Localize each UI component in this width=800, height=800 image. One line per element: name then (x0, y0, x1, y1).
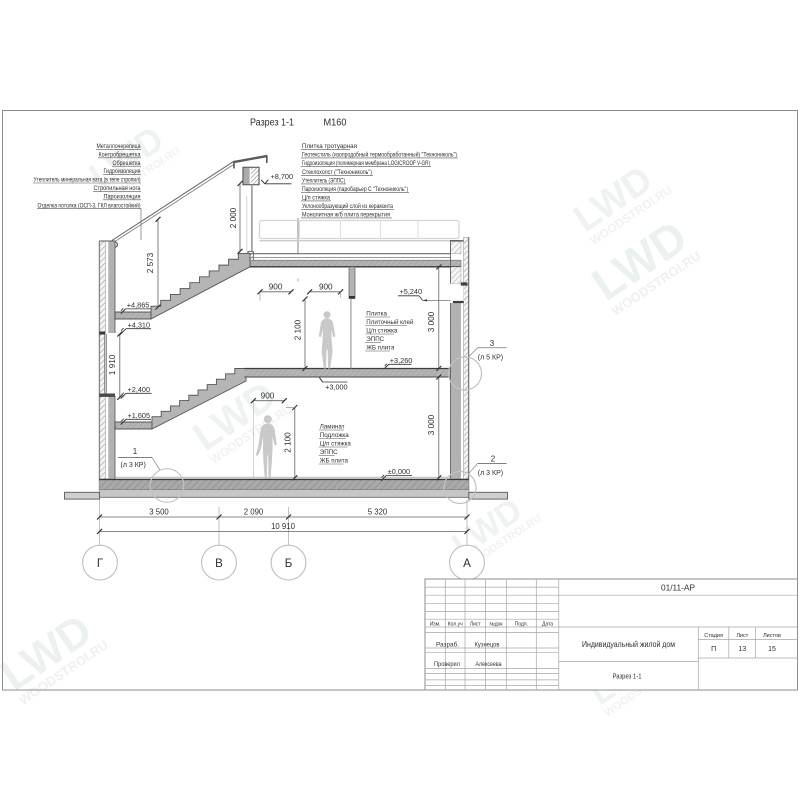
svg-text:Подп.: Подп. (515, 621, 528, 627)
svg-text:3 500: 3 500 (149, 508, 169, 517)
svg-text:ЭППС: ЭППС (320, 449, 338, 456)
svg-text:Ц/п стяжка: Ц/п стяжка (302, 195, 330, 202)
svg-text:П: П (711, 646, 716, 653)
svg-text:2 090: 2 090 (244, 508, 264, 517)
svg-text:Ц/п стяжка: Ц/п стяжка (366, 328, 398, 335)
svg-text:Отделка потолка (ОСП-3, ГКЛ вл: Отделка потолка (ОСП-3, ГКЛ влагостойкий… (38, 202, 141, 209)
svg-text:Алексеева: Алексеева (476, 662, 503, 668)
svg-text:+4,865: +4,865 (127, 301, 150, 310)
svg-text:Стеклохолст ("Технониколь"): Стеклохолст ("Технониколь") (302, 169, 372, 176)
svg-text:Лист: Лист (736, 633, 748, 639)
svg-text:Кол.уч: Кол.уч (448, 621, 463, 627)
svg-text:10 910: 10 910 (271, 522, 296, 531)
svg-text:+1,605: +1,605 (128, 411, 151, 420)
svg-text:Обрешетка: Обрешетка (113, 160, 141, 167)
svg-text:В: В (215, 558, 223, 570)
svg-text:2: 2 (491, 455, 496, 464)
svg-text:Металлочерепица: Металлочерепица (97, 143, 141, 150)
svg-text:Стропильная нога: Стропильная нога (94, 185, 141, 192)
svg-text:1 910: 1 910 (108, 354, 117, 375)
svg-text:2 000: 2 000 (229, 207, 238, 228)
svg-text:ЖБ плита: ЖБ плита (366, 345, 395, 352)
svg-text:2 100: 2 100 (293, 319, 302, 340)
svg-text:Плитка: Плитка (366, 311, 387, 318)
svg-text:3 000: 3 000 (427, 414, 436, 435)
svg-text:2 573: 2 573 (146, 252, 155, 273)
svg-text:Пароизоляция: Пароизоляция (104, 193, 141, 200)
svg-text:ЖБ плита: ЖБ плита (320, 458, 349, 465)
svg-text:3: 3 (490, 339, 495, 348)
svg-text:Подложка: Подложка (320, 432, 349, 439)
svg-text:Утеплитель (ЭППС): Утеплитель (ЭППС) (302, 178, 345, 185)
svg-text:Дата: Дата (542, 621, 553, 627)
svg-text:М160: М160 (324, 118, 347, 129)
svg-text:900: 900 (261, 391, 275, 400)
svg-text:Стадия: Стадия (704, 633, 723, 639)
svg-text:ЭППС: ЭППС (366, 336, 384, 343)
svg-text:Разрез 1-1: Разрез 1-1 (250, 118, 294, 129)
svg-text:№док: №док (489, 621, 503, 627)
svg-text:Плитка тротуарная: Плитка тротуарная (302, 143, 357, 150)
svg-text:Разраб.: Разраб. (436, 642, 459, 648)
svg-text:(л 3 КР): (л 3 КР) (478, 470, 503, 477)
svg-text:Ц/п стяжка: Ц/п стяжка (320, 441, 352, 448)
svg-text:3 000: 3 000 (427, 311, 436, 332)
svg-text:15: 15 (768, 646, 776, 653)
svg-text:Лист: Лист (470, 621, 482, 627)
svg-text:(л 3 КР): (л 3 КР) (121, 462, 146, 469)
svg-text:Монолитная ж/б плита перекрыти: Монолитная ж/б плита перекрытия (302, 212, 390, 219)
svg-text:Изм.: Изм. (430, 621, 441, 627)
svg-text:01/11-АР: 01/11-АР (661, 583, 695, 593)
svg-text:Кузнецов: Кузнецов (475, 642, 500, 648)
svg-text:Б: Б (285, 558, 293, 570)
svg-text:2 100: 2 100 (284, 432, 293, 453)
svg-text:5 320: 5 320 (368, 508, 388, 517)
svg-text:+3,260: +3,260 (390, 356, 413, 365)
svg-text:А: А (463, 558, 471, 570)
svg-text:Проверил: Проверил (434, 662, 460, 668)
svg-text:+2,400: +2,400 (128, 385, 151, 394)
svg-text:(л 5 КР): (л 5 КР) (478, 354, 503, 361)
svg-text:+3,000: +3,000 (325, 382, 348, 391)
svg-text:Ламинат: Ламинат (320, 424, 345, 431)
svg-text:Плиточный клей: Плиточный клей (366, 319, 414, 326)
svg-text:900: 900 (269, 282, 283, 291)
svg-text:+4,310: +4,310 (128, 320, 151, 329)
svg-text:Уклонообразующий слой из керам: Уклонообразующий слой из керамзита (302, 203, 393, 210)
svg-text:Гидроизоляция: Гидроизоляция (104, 168, 141, 175)
svg-text:±0,000: ±0,000 (388, 467, 410, 476)
svg-text:Листов: Листов (763, 633, 781, 639)
svg-text:Индивидуальный жилой дом: Индивидуальный жилой дом (582, 640, 675, 649)
svg-text:Г: Г (97, 558, 104, 570)
svg-text:+5,240: +5,240 (400, 287, 423, 296)
svg-text:+8,700: +8,700 (271, 172, 294, 181)
svg-text:Гидроизоляция (полимерная мемб: Гидроизоляция (полимерная мембрана LOGIC… (302, 160, 430, 167)
svg-text:Разрез 1-1: Разрез 1-1 (613, 672, 642, 681)
svg-text:1: 1 (133, 447, 138, 456)
svg-text:13: 13 (738, 646, 746, 653)
svg-text:Утеплитель минеральная вата (в: Утеплитель минеральная вата (в теле стро… (34, 177, 141, 184)
svg-text:900: 900 (319, 282, 333, 291)
svg-text:Пароизоляция (паробарьер С "Те: Пароизоляция (паробарьер С "Технониколь"… (302, 186, 408, 193)
svg-text:Контробрешетка: Контробрешетка (99, 151, 141, 158)
svg-text:Геотекстиль (изопродобный терм: Геотекстиль (изопродобный термообработан… (302, 152, 457, 159)
